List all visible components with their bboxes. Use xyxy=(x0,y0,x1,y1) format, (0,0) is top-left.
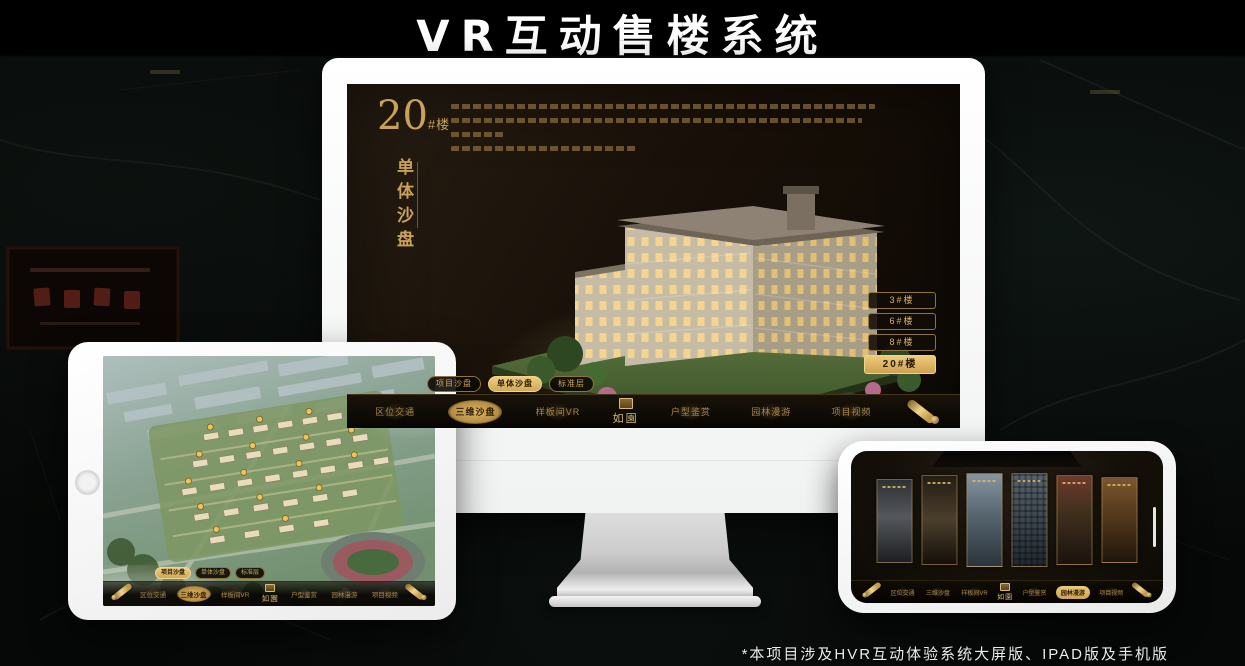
nav-item-label: 三维沙盘 xyxy=(926,591,950,597)
subtab-project-sandbox[interactable]: 项目沙盘 xyxy=(155,567,191,579)
nav-item-project-video[interactable]: 项目视频 xyxy=(1097,586,1125,599)
nav-item-label: 区位交通 xyxy=(375,407,415,417)
section-title-vertical: 单体沙盘 xyxy=(391,158,416,254)
nav-item-label: 项目视频 xyxy=(1099,591,1123,597)
brand-logo-text: 如園 xyxy=(997,592,1013,602)
stage: VR互动售楼系统 20#楼 单体沙盘 xyxy=(0,0,1245,666)
phone-screen: 区位交通 三维沙盘 样板间VR 如園 户型鉴赏 园林漫游 项目视频 xyxy=(851,451,1163,603)
nav-item-garden-roam[interactable]: 园林漫游 xyxy=(743,399,799,424)
tablet-device-frame: 项目沙盘 单体沙盘 标准层 区位交通 三维沙盘 样板间VR 如園 户型鉴赏 园林… xyxy=(68,342,456,620)
seal-icon xyxy=(619,398,633,409)
home-button xyxy=(75,470,100,495)
nav-item-label: 园林漫游 xyxy=(331,592,357,599)
scroll-icon[interactable] xyxy=(904,399,940,425)
subtab-project-sandbox[interactable]: 项目沙盘 xyxy=(427,376,481,392)
subtab-standard-floor[interactable]: 标准层 xyxy=(549,376,594,392)
nav-item-label: 三维沙盘 xyxy=(181,592,207,599)
phone-nav-bar: 区位交通 三维沙盘 样板间VR 如園 户型鉴赏 园林漫游 项目视频 xyxy=(851,580,1163,603)
nav-item-floorplans[interactable]: 户型鉴赏 xyxy=(663,399,719,424)
description-text-lines xyxy=(451,104,875,160)
seal-icon xyxy=(265,584,275,592)
nav-item-label: 样板间VR xyxy=(221,592,250,599)
brand-logo: 如園 xyxy=(262,584,279,604)
nav-item-3d-sandbox[interactable]: 三维沙盘 xyxy=(924,586,952,599)
nav-item-showroom-vr[interactable]: 样板间VR xyxy=(959,586,989,599)
nav-item-location[interactable]: 区位交通 xyxy=(367,399,423,424)
seal-icon xyxy=(1000,583,1010,591)
monitor-screen: 20#楼 单体沙盘 xyxy=(347,84,960,428)
brand-logo-text: 如園 xyxy=(262,593,279,604)
gallery-card[interactable] xyxy=(967,473,1003,567)
gallery-card-row xyxy=(877,475,1138,567)
gallery-card[interactable] xyxy=(922,475,958,565)
phone-device-frame: 区位交通 三维沙盘 样板间VR 如園 户型鉴赏 园林漫游 项目视频 xyxy=(838,441,1176,613)
nav-item-label: 三维沙盘 xyxy=(455,407,495,417)
monitor-stand-base xyxy=(549,596,761,607)
nav-item-label: 户型鉴赏 xyxy=(671,407,711,417)
scroll-icon[interactable] xyxy=(862,582,884,598)
home-indicator xyxy=(1153,507,1156,547)
building-title: 20#楼 xyxy=(377,96,450,136)
nav-item-project-video[interactable]: 项目视频 xyxy=(370,586,400,602)
brand-logo: 如園 xyxy=(997,583,1013,602)
footnote-text: *本项目涉及HVR互动体验系统大屏版、IPAD版及手机版 xyxy=(742,643,1169,664)
subtab-single-sandbox[interactable]: 单体沙盘 xyxy=(195,567,231,579)
brand-logo: 如園 xyxy=(613,398,639,426)
building-button-6[interactable]: 6#楼 xyxy=(868,313,936,330)
subtab-single-sandbox[interactable]: 单体沙盘 xyxy=(488,376,542,392)
nav-item-label: 区位交通 xyxy=(891,591,915,597)
page-title: VR互动售楼系统 xyxy=(0,0,1245,64)
tablet-nav-bar: 区位交通 三维沙盘 样板间VR 如園 户型鉴赏 园林漫游 项目视频 xyxy=(103,581,435,606)
nav-item-label: 户型鉴赏 xyxy=(291,592,317,599)
building-button-3[interactable]: 3#楼 xyxy=(868,292,936,309)
scroll-icon[interactable] xyxy=(403,583,427,601)
nav-item-label: 项目视频 xyxy=(372,592,398,599)
nav-item-location[interactable]: 区位交通 xyxy=(138,586,168,602)
building-button-20[interactable]: 20#楼 xyxy=(864,355,936,374)
vertical-divider xyxy=(417,162,418,228)
scroll-icon[interactable] xyxy=(1130,582,1152,598)
nav-item-label: 样板间VR xyxy=(536,407,581,417)
monitor-nav-bar: 区位交通 三维沙盘 样板间VR 如園 户型鉴赏 园林漫游 项目视频 xyxy=(347,394,960,428)
gallery-card[interactable] xyxy=(1102,477,1138,563)
background-plaque xyxy=(8,248,178,348)
monitor-subtab-group: 项目沙盘 单体沙盘 标准层 xyxy=(427,376,594,392)
nav-item-label: 项目视频 xyxy=(832,407,872,417)
gallery-card[interactable] xyxy=(1012,473,1048,567)
nav-item-location[interactable]: 区位交通 xyxy=(889,586,917,599)
nav-item-3d-sandbox[interactable]: 三维沙盘 xyxy=(447,399,503,424)
subtab-standard-floor[interactable]: 标准层 xyxy=(235,567,265,579)
nav-item-label: 户型鉴赏 xyxy=(1022,591,1046,597)
nav-item-showroom-vr[interactable]: 样板间VR xyxy=(219,586,252,602)
monitor-stand xyxy=(557,513,753,598)
gate-roof-silhouette xyxy=(932,451,1082,467)
nav-item-label: 园林漫游 xyxy=(1061,591,1085,597)
building-number: 20 xyxy=(377,93,428,139)
nav-item-floorplans[interactable]: 户型鉴赏 xyxy=(1020,586,1048,599)
nav-item-3d-sandbox[interactable]: 三维沙盘 xyxy=(179,586,209,602)
brand-logo-text: 如園 xyxy=(613,410,639,426)
building-selector-group: 3#楼 6#楼 8#楼 20#楼 xyxy=(864,292,936,374)
building-button-8[interactable]: 8#楼 xyxy=(868,334,936,351)
gallery-card[interactable] xyxy=(1057,475,1093,565)
scroll-icon[interactable] xyxy=(111,583,135,601)
nav-item-label: 区位交通 xyxy=(140,592,166,599)
nav-item-label: 样板间VR xyxy=(961,591,987,597)
nav-item-showroom-vr[interactable]: 样板间VR xyxy=(528,399,589,424)
nav-item-garden-roam[interactable]: 园林漫游 xyxy=(1056,586,1090,599)
nav-item-floorplans[interactable]: 户型鉴赏 xyxy=(289,586,319,602)
building-number-suffix: #楼 xyxy=(428,117,450,132)
nav-item-project-video[interactable]: 项目视频 xyxy=(824,399,880,424)
gallery-card[interactable] xyxy=(877,479,913,563)
nav-item-garden-roam[interactable]: 园林漫游 xyxy=(329,586,359,602)
nav-item-label: 园林漫游 xyxy=(751,407,791,417)
tablet-subtab-group: 项目沙盘 单体沙盘 标准层 xyxy=(155,567,265,579)
